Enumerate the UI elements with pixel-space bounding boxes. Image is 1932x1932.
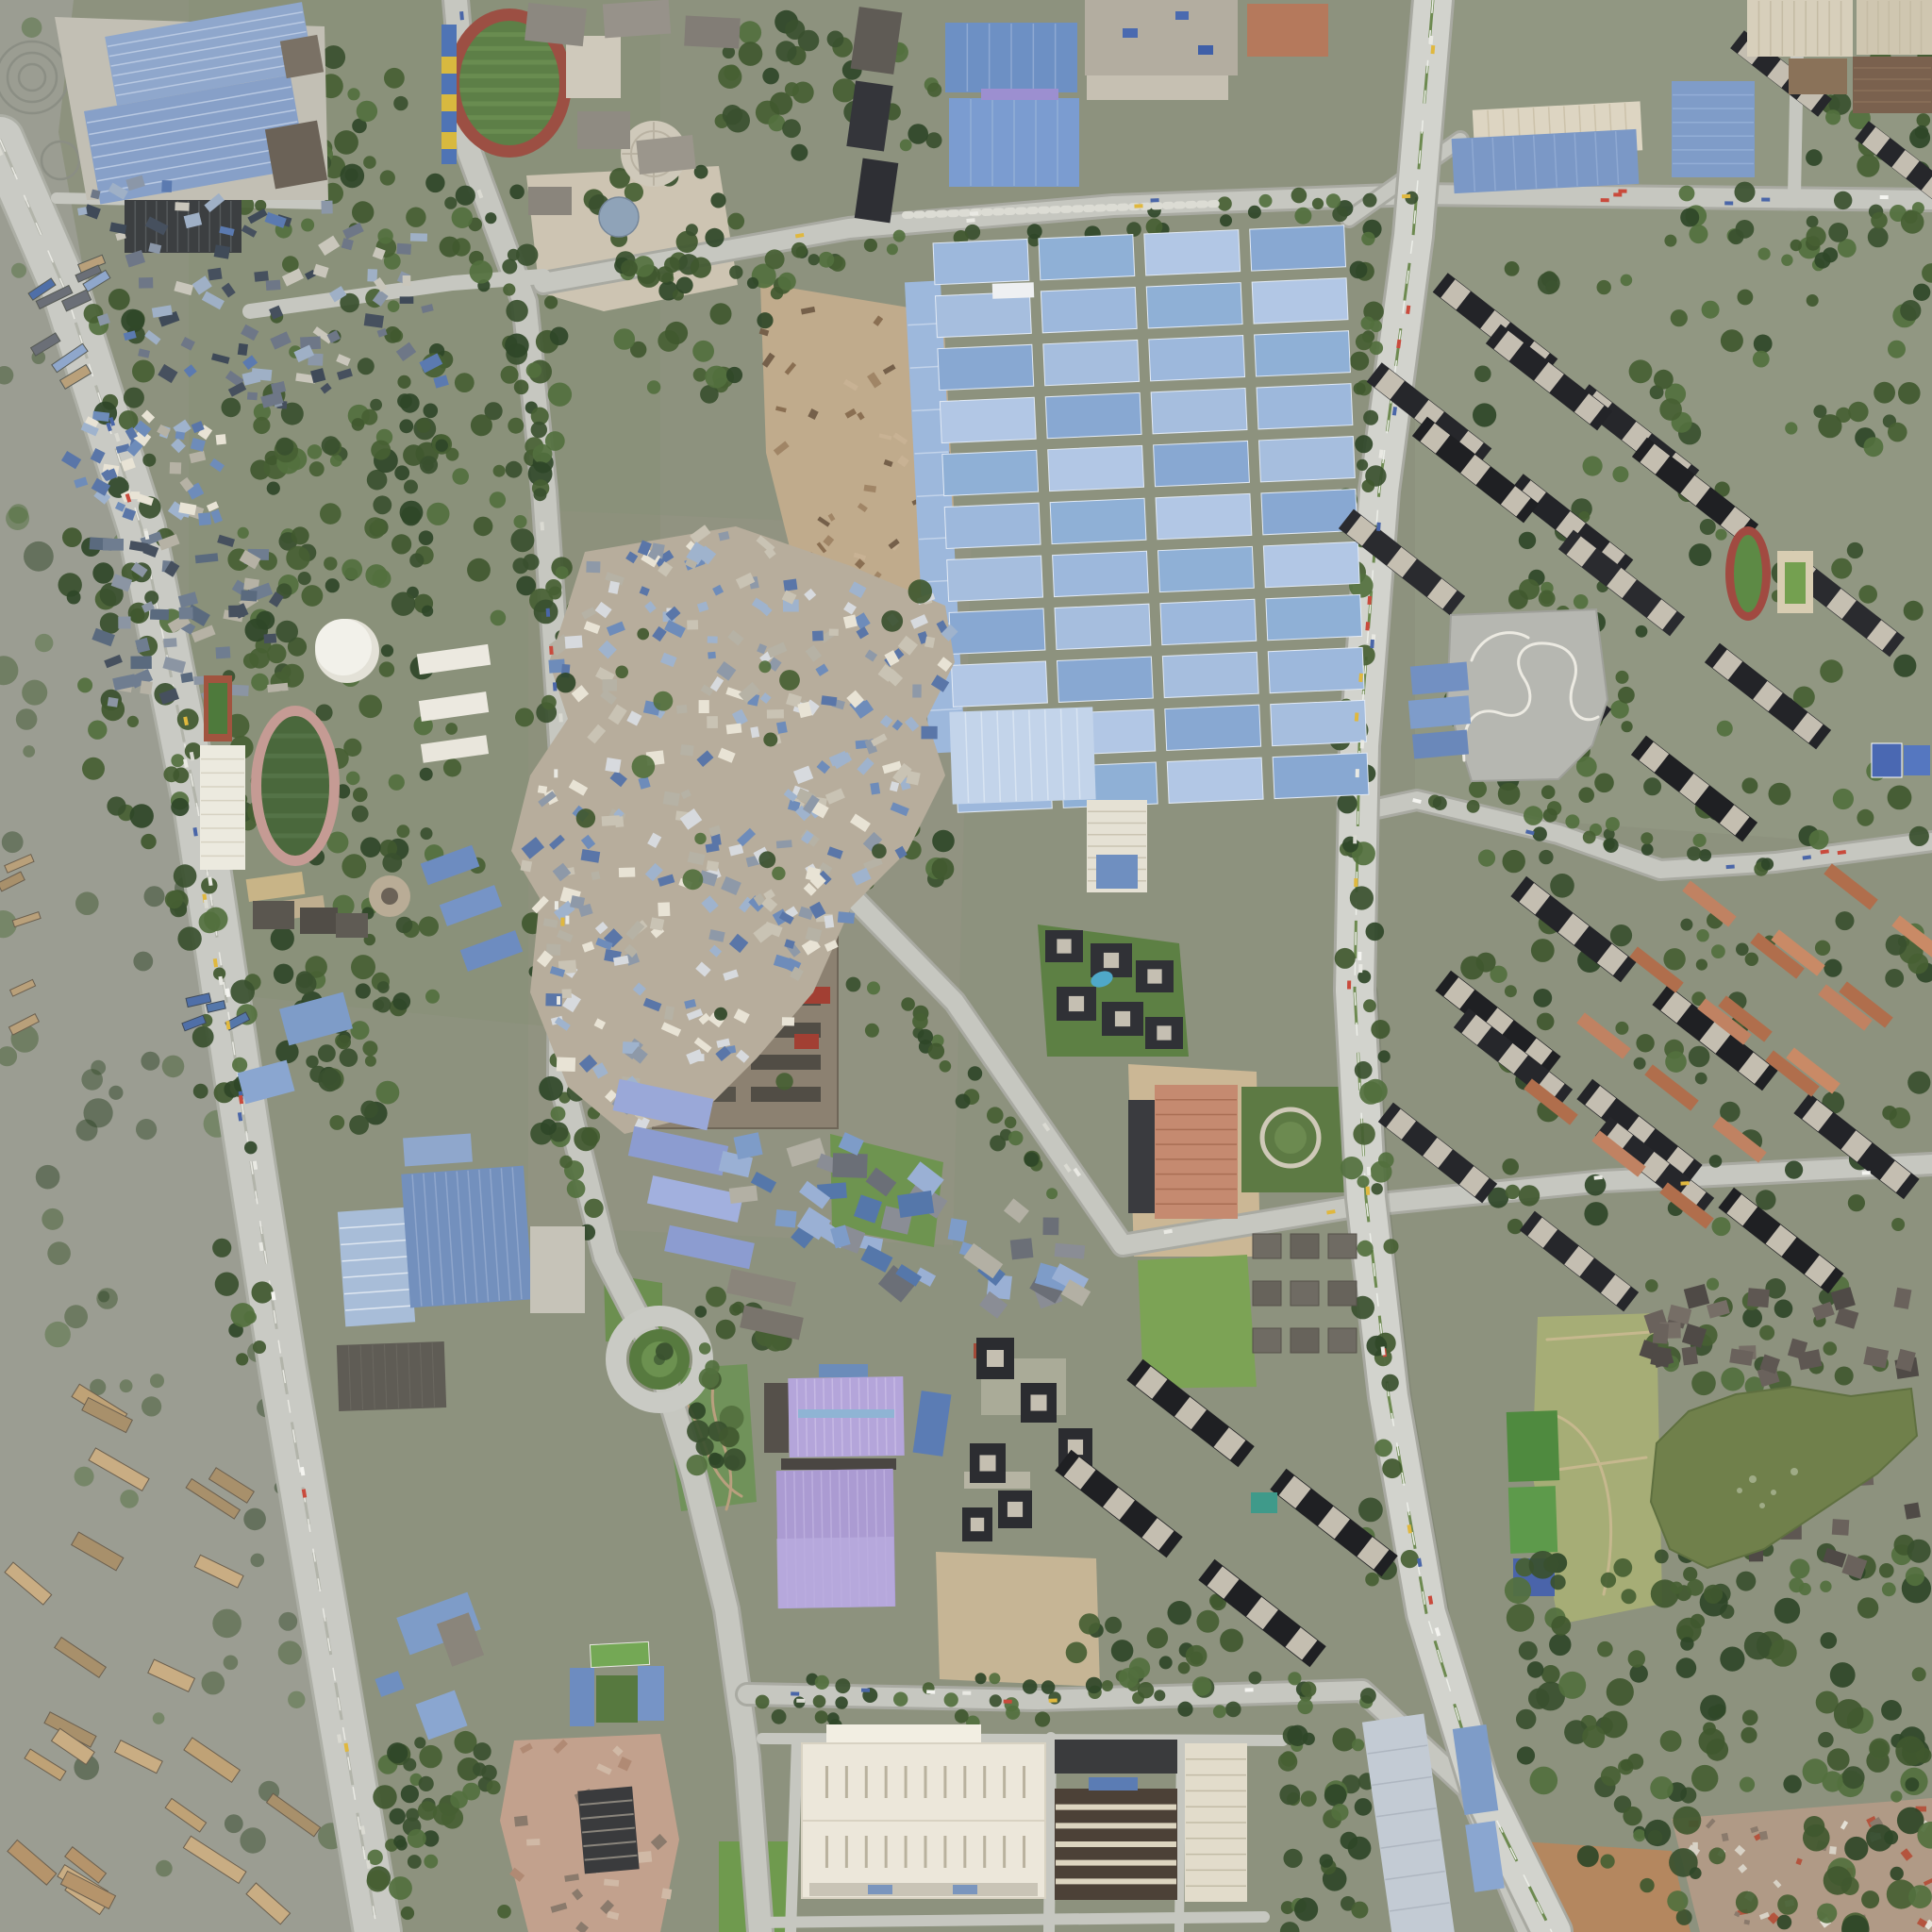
concrete-apron: [1087, 75, 1228, 100]
white-warehouse-annex: [826, 1724, 981, 1745]
cream-court-green: [1785, 562, 1806, 604]
market-blue-roof-1: [945, 23, 1077, 92]
gray-villas: [1253, 1234, 1357, 1353]
track-stand-y2: [441, 94, 457, 111]
factory-big-light-roof: [949, 707, 1095, 804]
pond-sparkle-3: [1790, 1468, 1798, 1475]
soccer-field-2: [1508, 1486, 1557, 1554]
factory-parking: [530, 1226, 585, 1313]
campus-bldg-5: [636, 135, 695, 175]
blue-roof-small: [1089, 1777, 1138, 1790]
factory-north-annex: [403, 1134, 473, 1167]
warehouse-lane-e: [1179, 1741, 1181, 1932]
campus-dark-1: [253, 901, 294, 929]
dark-slab-bldg: [1055, 1740, 1177, 1774]
school-courtyard: [596, 1675, 638, 1723]
blue-tarp-2: [1175, 11, 1189, 20]
dark-warehouse: [1055, 1789, 1177, 1900]
driving-school-pad: [1447, 609, 1607, 781]
annex-dark-tl-1: [265, 121, 327, 190]
school-bldg-2: [638, 1666, 664, 1721]
arena-dome: [315, 619, 372, 675]
dock-door-1: [868, 1885, 892, 1894]
tennis-court: [208, 683, 227, 734]
stadium: [251, 706, 340, 866]
demolition-building: [577, 1787, 639, 1874]
compound-tower-4: [1057, 987, 1096, 1021]
pond-sparkle-1: [1749, 1475, 1757, 1483]
steel-blue-factory: [401, 1166, 533, 1308]
res-tower-2: [1021, 1383, 1057, 1423]
blue-tarp-bldg: [1096, 855, 1138, 889]
rubble-corner-se: [1672, 1798, 1932, 1932]
construction-building: [1155, 1085, 1238, 1219]
construction-core-tower: [1128, 1100, 1157, 1213]
round-bldg-core: [381, 888, 398, 905]
brown-shed-tr-1: [1789, 58, 1847, 94]
substation-red-bldg-3: [794, 1034, 819, 1049]
purple-warehouse-gap: [781, 1458, 896, 1470]
blue-shed-ds-3: [1412, 730, 1469, 759]
red-dirt-topright: [1247, 4, 1328, 57]
campus-bldg-4: [577, 111, 630, 149]
blue-shed-ds-1: [1410, 661, 1469, 694]
small-dome: [599, 197, 639, 237]
annex-dark-tl-2: [280, 35, 324, 78]
compound-tower-2: [1091, 943, 1132, 977]
campus-bldg-2: [603, 0, 671, 38]
loading-dock: [809, 1883, 1038, 1896]
compound-tower-3: [1136, 960, 1174, 992]
tower-e-2: [998, 1491, 1032, 1528]
campus-dark-3: [336, 913, 368, 938]
cream-shed-tr-1: [1747, 0, 1853, 57]
warehouse-lane-w: [791, 1740, 797, 1932]
pond-sparkle-2: [1771, 1490, 1776, 1495]
market-ridge-purple: [981, 89, 1058, 100]
blue-shed-ds-2: [1408, 695, 1471, 728]
garden-core: [1274, 1122, 1307, 1154]
warehouse-lane-s: [755, 1917, 1264, 1923]
market-blue-roof-2: [949, 98, 1079, 187]
compound-tower-1: [1045, 930, 1083, 962]
cream-shed-tr-2: [1857, 0, 1932, 55]
dark-flat-bldg: [337, 1341, 446, 1411]
res-tower-1: [976, 1338, 1014, 1379]
campus-bldg-1: [525, 3, 587, 46]
grandstand: [200, 745, 245, 870]
tower-e-1: [970, 1443, 1006, 1483]
warehouse-lane-mid: [1049, 1738, 1051, 1932]
vacant-dirt-center: [936, 1552, 1100, 1687]
tower-e-3: [962, 1507, 992, 1541]
school-bldg-1: [570, 1668, 594, 1726]
cream-warehouse-e: [1185, 1743, 1247, 1902]
campus-dark-2: [300, 908, 338, 934]
brown-shed-tr-2: [1853, 57, 1932, 113]
blue-glass-bldg: [1672, 81, 1755, 177]
track-stand-y1: [441, 57, 457, 74]
purple-warehouse-n-annex: [819, 1364, 868, 1377]
purple-warehouse-2-south: [776, 1537, 894, 1608]
teal-court: [1251, 1492, 1277, 1513]
track-stand-y3: [441, 132, 457, 149]
school-green-court: [590, 1641, 649, 1667]
blue-court-1: [1872, 743, 1902, 777]
campus-bldg-3: [684, 16, 741, 49]
small-track-e: [1725, 526, 1771, 621]
campus-bldg-6: [528, 187, 572, 215]
purple-warehouse-west-annex: [764, 1383, 789, 1453]
vacant-green-lot: [1138, 1255, 1257, 1389]
blue-warehouse-tr: [1452, 129, 1640, 193]
soccer-field-1: [1507, 1410, 1560, 1482]
satellite-scene: [0, 0, 1932, 1932]
factory-white-strip: [992, 282, 1035, 299]
purple-warehouse-skylight: [798, 1409, 894, 1418]
pond-sparkle-4: [1759, 1503, 1765, 1508]
pond-sparkle-5: [1737, 1488, 1742, 1493]
compound-tower-5: [1102, 1002, 1143, 1036]
blue-court-2: [1904, 745, 1930, 775]
glass-roof-factory: [338, 1207, 415, 1327]
blue-tarp-1: [1123, 28, 1138, 38]
satellite-image: [0, 0, 1932, 1932]
blue-tarp-3: [1198, 45, 1213, 55]
concrete-bldg-top: [1085, 0, 1238, 75]
dock-door-2: [953, 1885, 977, 1894]
compound-tower-6: [1145, 1017, 1183, 1049]
dark-tower-1: [851, 7, 903, 75]
